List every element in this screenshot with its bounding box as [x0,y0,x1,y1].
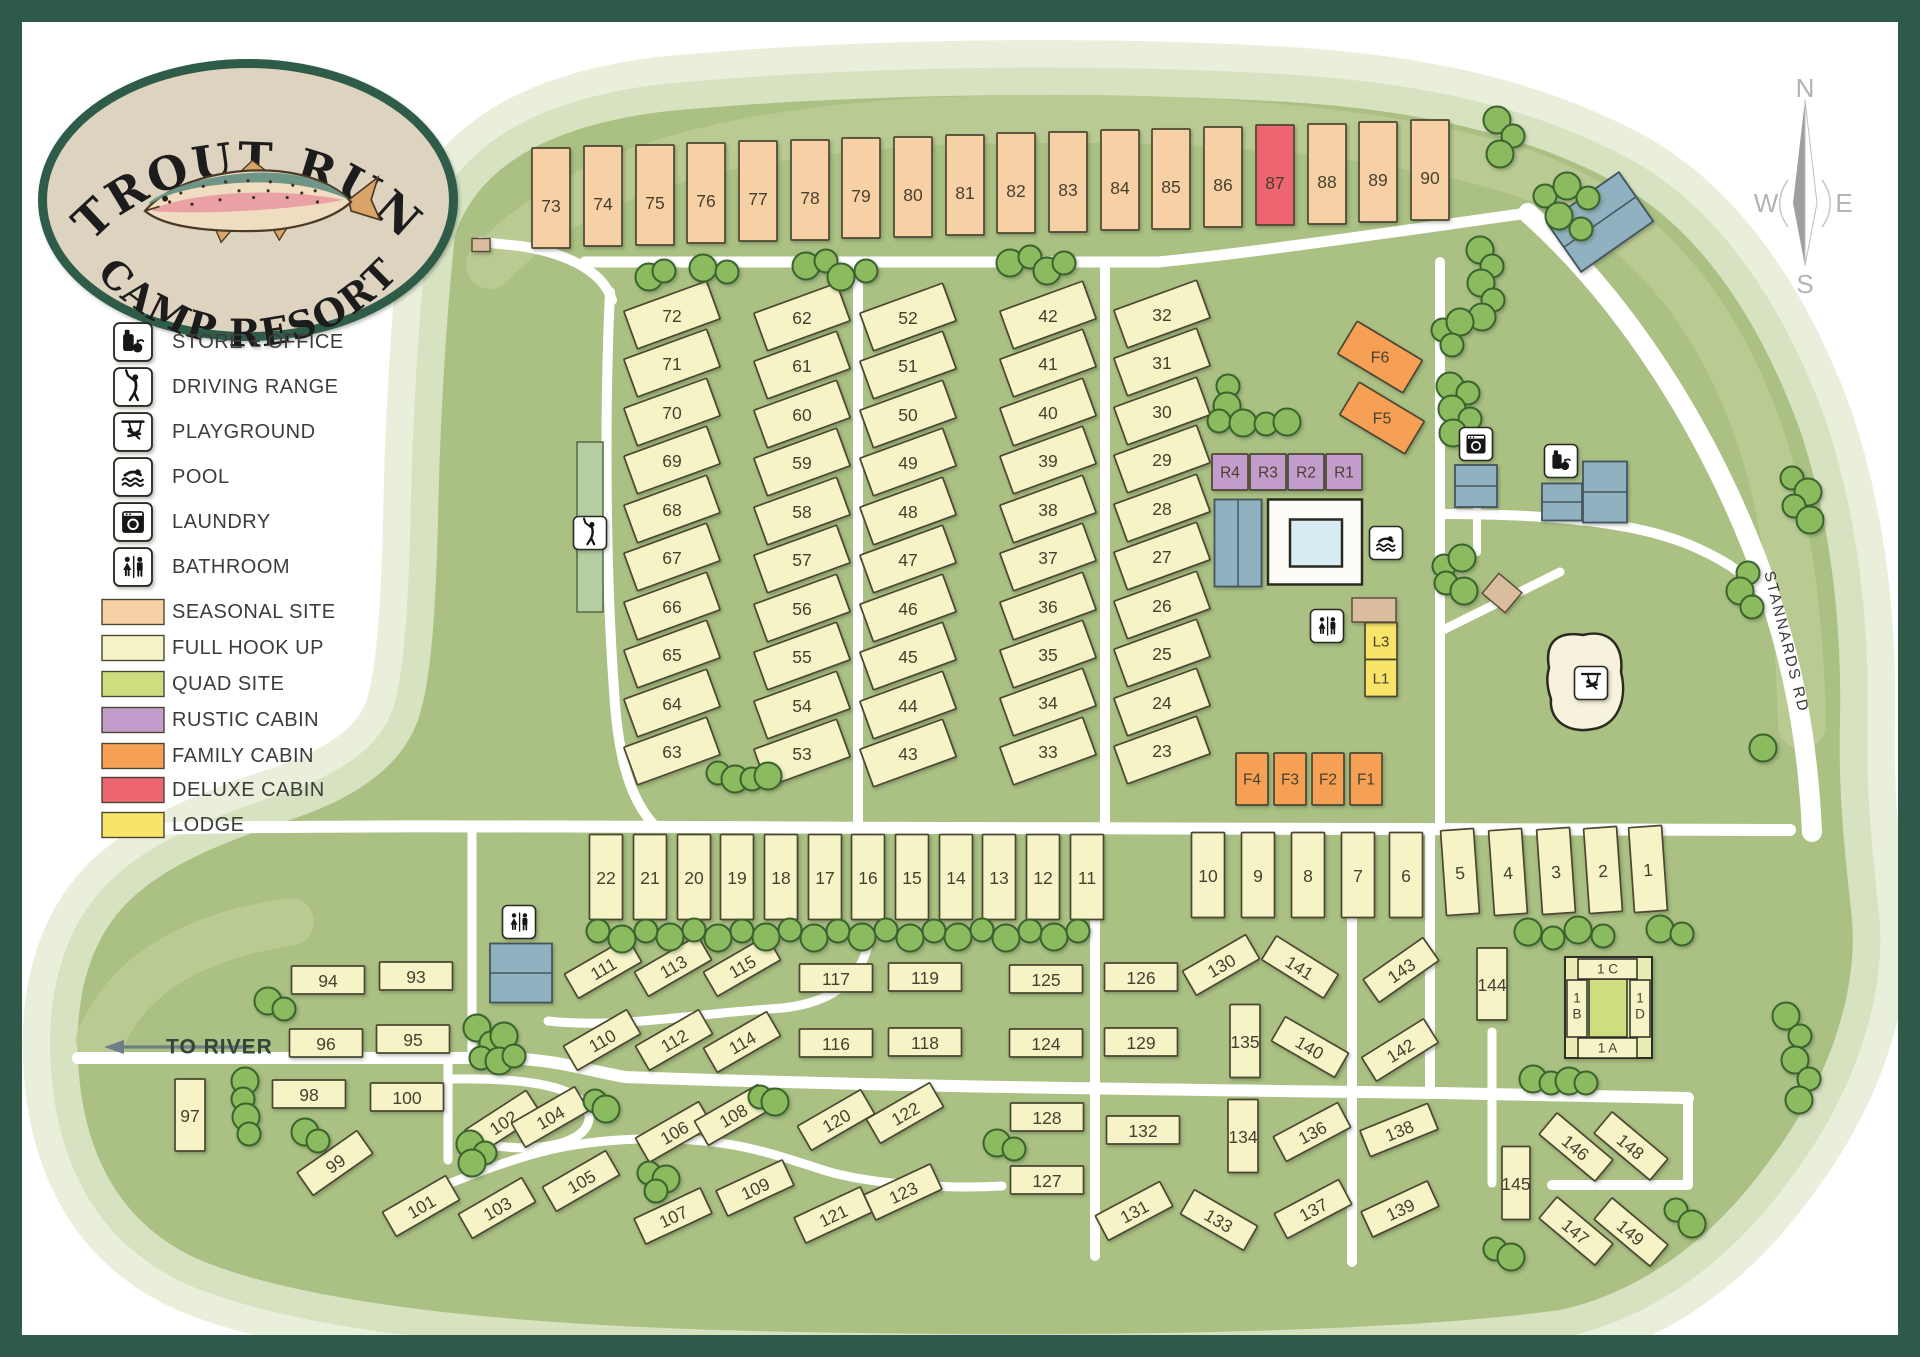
golf-icon [574,517,607,550]
building [1455,465,1497,507]
site-number: R3 [1258,465,1278,482]
legend-swing-icon [114,413,152,451]
legend-item-label: BATHROOM [172,556,290,578]
site-R1: R1 [1326,454,1362,490]
legend-item-label: STORE + OFFICE [172,331,344,353]
tree [1447,309,1474,336]
trout-spot [202,185,205,188]
tree [1041,924,1068,951]
site-R3: R3 [1250,454,1286,490]
site-number: 67 [662,548,681,568]
tree [731,920,754,943]
legend-swatch-family: FAMILY CABIN [102,744,314,769]
site-number: 78 [800,188,819,208]
site-number: 94 [318,971,338,991]
swim-icon [1370,527,1403,560]
site-number: 4 [1503,863,1514,884]
site-116: 116 [800,1029,873,1057]
site-number: 77 [748,189,767,209]
tree [849,924,876,951]
tree [1546,203,1573,230]
lodge-unit-label: 1 C [1597,962,1618,977]
site-F1: F1 [1350,753,1382,805]
golf-glyph-stroke [134,381,136,393]
site-number: F5 [1373,411,1392,428]
site-number: 118 [911,1033,939,1053]
site-number: 126 [1126,968,1155,988]
site-number: 26 [1152,596,1171,616]
wc-icon [503,906,536,939]
tree [1797,507,1824,534]
site-number: 11 [1078,868,1096,888]
store-jug [1552,454,1561,469]
site-number: 6 [1401,866,1411,886]
site-16: 16 [852,835,885,920]
site-number: 117 [822,969,850,989]
compass-e: E [1835,188,1852,218]
site-number: 15 [902,868,921,888]
legend-swatch-quad: QUAD SITE [102,672,284,697]
tree [993,925,1020,952]
site-number: L3 [1373,634,1390,651]
site-number: 41 [1038,354,1057,374]
wc-glyph-dot [1331,617,1335,621]
site-number: 65 [662,645,681,665]
tree [1441,334,1464,357]
site-number: 96 [316,1034,335,1054]
tree [1515,919,1542,946]
wc-body [137,562,143,570]
tree [657,924,684,951]
site-number: 61 [792,356,811,376]
site-20: 20 [678,835,711,920]
site-88: 88 [1308,124,1346,224]
site-85: 85 [1152,129,1190,229]
site-number: 89 [1368,170,1387,190]
tree [1487,141,1514,168]
legend-swatch-color [102,672,164,697]
site-number: 72 [662,306,681,326]
site-number: 54 [792,696,812,716]
site-number: 38 [1038,500,1057,520]
site-number: 145 [1501,1174,1530,1194]
tree [779,919,802,942]
building [1542,484,1582,521]
site-6: 6 [1390,833,1423,918]
icon-box [574,517,607,550]
trout-eye [162,196,168,202]
site-134: 134 [1228,1100,1258,1173]
site-14: 14 [940,835,973,920]
tree [1230,410,1257,437]
site-number: 73 [541,196,560,216]
site-number: 2 [1598,861,1609,882]
wc-glyph-dot [137,557,142,562]
site-number: F3 [1281,772,1299,789]
compass-w: W [1754,188,1779,218]
site-124: 124 [1010,1029,1083,1057]
site-number: 17 [815,868,834,888]
tree [1570,218,1593,241]
legend-swatch-full: FULL HOOK UP [102,636,324,661]
site-number: 97 [180,1106,199,1126]
tree [1679,1211,1706,1238]
legend-swatch-rustic: RUSTIC CABIN [102,708,319,733]
legend-item-label: POOL [172,466,230,488]
building [1583,462,1627,523]
tree [1577,187,1600,210]
building [490,944,552,1003]
site-84: 84 [1101,130,1139,230]
site-number: 85 [1161,177,1180,197]
trout-spot [246,179,249,182]
golf-glyph-stroke [591,528,592,539]
site-number: 88 [1317,172,1336,192]
site-number: 132 [1128,1121,1157,1141]
laundry-glyph-dot [129,513,131,515]
tree [897,925,924,952]
legend-swatch-color [102,813,164,838]
site-number: 30 [1152,402,1172,422]
tree [1208,410,1231,433]
lodge-unit-label: 1D [1635,991,1645,1022]
laundry-glyph-dot [1473,437,1475,439]
legend-item-label: LAUNDRY [172,511,271,533]
site-number: 53 [792,744,811,764]
site-number: 10 [1198,866,1218,886]
site-number: 59 [792,453,811,473]
tree [645,1180,668,1203]
tree [635,920,658,943]
site-F4: F4 [1236,753,1268,805]
tree [875,919,898,942]
wc-glyph-dot [523,913,527,917]
legend-swatch-color [102,744,164,769]
site-number: 70 [662,403,682,423]
swing-icon [1575,667,1608,700]
site-number: 55 [792,647,811,667]
site-79: 79 [842,138,880,238]
site-83: 83 [1049,132,1087,232]
site-number: 93 [406,967,425,987]
tree [855,260,878,283]
site-number: 36 [1038,597,1057,617]
tree [828,264,855,291]
wc-glyph-dot [125,557,130,562]
tree [1786,1087,1813,1114]
legend-store-icon [114,323,152,361]
tree [238,1123,261,1146]
site-number: 1 [1643,860,1654,881]
tree [1542,927,1565,950]
tree [755,763,782,790]
site-number: 25 [1152,644,1171,664]
icon-box [114,458,152,496]
site-number: 62 [792,308,811,328]
site-number: 71 [662,354,681,374]
site-number: 68 [662,500,681,520]
site-11: 11 [1071,835,1104,920]
site-117: 117 [800,964,873,992]
site-number: 37 [1038,548,1057,568]
site-118: 118 [889,1028,962,1056]
site-number: 135 [1230,1032,1259,1052]
site-17: 17 [809,835,842,920]
site-93: 93 [380,962,453,990]
site-number: 58 [792,502,811,522]
legend-swatch-color [102,708,164,733]
site-73: 73 [532,148,570,248]
site-76: 76 [687,143,725,243]
site-18: 18 [765,835,798,920]
site-86: 86 [1204,127,1242,227]
site-5: 5 [1441,828,1480,915]
legend-laundry-icon [114,503,152,541]
tree [307,1130,330,1153]
trout-spot [237,189,240,192]
site-number: 98 [299,1085,318,1105]
trout-spot [252,196,255,199]
tree [923,920,946,943]
site-number: 43 [898,744,917,764]
site-129: 129 [1105,1028,1178,1056]
site-74: 74 [584,146,622,246]
trout-spot [316,200,319,203]
tree [503,1045,526,1068]
to-river-text: TO RIVER [166,1036,273,1059]
site-number: 80 [903,185,923,205]
site-97: 97 [175,1079,205,1151]
laundry-glyph-dot [129,521,137,529]
site-number: 12 [1033,868,1052,888]
site-number: 8 [1303,866,1313,886]
site-number: 87 [1265,173,1284,193]
wc-body [1330,622,1335,629]
site-95: 95 [377,1025,450,1053]
site-number: 76 [696,191,715,211]
site-number: 20 [684,868,704,888]
tree [273,998,296,1021]
legend-swatch-label: QUAD SITE [172,673,284,695]
tree [716,261,739,284]
site-number: F6 [1371,350,1390,367]
site-3: 3 [1537,827,1576,914]
trout-spot [190,203,193,206]
trout-spot [179,191,182,194]
site-number: 44 [898,696,918,716]
site-R2: R2 [1288,454,1324,490]
tree [1019,920,1042,943]
site-number: 21 [640,868,659,888]
site-number: 35 [1038,645,1057,665]
legend-swatch-color [102,636,164,661]
site-number: 90 [1420,168,1440,188]
site-number: 27 [1152,547,1171,567]
site-L3: L3 [1365,623,1397,660]
lodge-unit-1C: 1 C [1578,959,1637,979]
site-128: 128 [1011,1103,1084,1131]
site-number: 84 [1110,178,1130,198]
tree [593,1096,620,1123]
tree [753,924,780,951]
tree [609,926,636,953]
tree [683,919,706,942]
site-80: 80 [894,137,932,237]
site-number: 51 [898,356,917,376]
legend-swatch-label: RUSTIC CABIN [172,709,319,731]
lodge-unit-1D: 1D [1630,980,1650,1037]
site-number: 45 [898,647,917,667]
site-number: 48 [898,502,917,522]
site-L1: L1 [1365,660,1397,697]
icon-box [114,368,152,406]
tree [1003,1138,1026,1161]
site-number: R2 [1296,465,1316,482]
site-1: 1 [1629,825,1668,912]
site-number: R4 [1220,465,1240,482]
site-number: F2 [1319,772,1337,789]
site-77: 77 [739,141,777,241]
legend-swatch-label: FAMILY CABIN [172,745,314,767]
store-icon [1545,445,1578,478]
site-number: 66 [662,597,681,617]
site-number: 60 [792,405,812,425]
trout-spot [267,189,270,192]
store-jug [123,334,134,351]
tree [801,925,828,952]
tree [705,925,732,952]
trout-spot [269,180,272,183]
site-15: 15 [896,835,929,920]
site-number: L1 [1373,671,1390,688]
site-89: 89 [1359,122,1397,222]
tree [1647,916,1674,943]
site-13: 13 [983,835,1016,920]
site-number: 31 [1152,353,1171,373]
lodge-center [1589,979,1627,1037]
site-number: 129 [1126,1033,1155,1053]
tree [1789,1025,1812,1048]
tree [827,920,850,943]
trout-spot [168,200,171,203]
site-number: 28 [1152,499,1171,519]
legend-swatch-lodge: LODGE [102,813,245,838]
trout-spot [286,196,289,199]
lodge-complex: 1 C1 A1B1D [1565,957,1652,1058]
site-number: 5 [1455,863,1466,884]
tree [1451,578,1478,605]
tree [587,920,610,943]
site-22: 22 [590,835,623,920]
site-132: 132 [1107,1116,1180,1144]
legend-swatch-seasonal: SEASONAL SITE [102,600,336,625]
tree [1750,735,1777,762]
legend-swatch-deluxe: DELUXE CABIN [102,778,325,803]
trout-spot [314,189,317,192]
site-100: 100 [371,1083,444,1111]
site-number: 29 [1152,450,1171,470]
site-10: 10 [1192,833,1225,918]
store-glyph-dot [1561,462,1569,470]
site-78: 78 [791,140,829,240]
site-82: 82 [997,133,1035,233]
lodge-unit-1A: 1 A [1578,1038,1637,1058]
campground-map: 7374757677787980818283848586878889907271… [0,0,1920,1357]
laundry-glyph-dot [1473,443,1480,450]
site-number: R1 [1334,465,1354,482]
tree [1565,917,1592,944]
laundry-glyph-dot [126,513,128,515]
site-number: 9 [1253,866,1263,886]
site-87: 87 [1256,125,1294,225]
road [92,826,1790,830]
store-jug-neck [125,330,130,335]
site-number: F4 [1243,772,1261,789]
compass-n: N [1796,73,1815,103]
shed-shape [472,239,490,252]
tree [762,1089,789,1116]
site-R4: R4 [1212,454,1248,490]
site-number: 50 [898,405,918,425]
site-number: 19 [727,868,746,888]
tree [1575,1072,1598,1095]
tree [459,1150,486,1177]
site-number: 116 [822,1034,850,1054]
tree [1741,596,1764,619]
site-number: 7 [1353,866,1363,886]
site-75: 75 [636,145,674,245]
shed [1352,598,1396,622]
site-number: 40 [1038,403,1058,423]
site-number: 95 [403,1030,422,1050]
site-12: 12 [1027,835,1060,920]
map-canvas: 7374757677787980818283848586878889907271… [0,0,1920,1357]
building [1215,500,1262,587]
site-number: F1 [1357,772,1375,789]
tree [690,255,717,282]
shed-shape [1352,598,1396,622]
site-number: 75 [645,193,664,213]
tree [1671,923,1694,946]
site-2: 2 [1584,826,1623,913]
site-number: 22 [596,868,615,888]
site-number: 144 [1477,975,1506,995]
site-number: 74 [593,194,613,214]
lodge-unit-label: 1B [1572,991,1581,1022]
site-number: 52 [898,308,917,328]
legend-swatch-label: LODGE [172,814,245,836]
site-number: 134 [1228,1127,1257,1147]
icon-box [1370,527,1403,560]
site-number: 127 [1032,1171,1061,1191]
site-number: 83 [1058,180,1077,200]
site-number: 42 [1038,306,1057,326]
store-jug-neck [1554,450,1558,455]
legend-item-label: DRIVING RANGE [172,376,339,398]
legend-wc-icon [114,548,152,586]
site-number: 63 [662,742,681,762]
trout-spot [218,198,221,201]
site-number: 119 [911,968,939,988]
lodge-unit-label: 1 A [1598,1041,1618,1056]
tree [1498,1244,1525,1271]
laundry-icon [1460,428,1493,461]
site-number: 24 [1152,693,1172,713]
site-number: 39 [1038,451,1057,471]
site-96: 96 [290,1029,363,1057]
wc-glyph-dot [1320,617,1324,621]
legend-swatch-label: FULL HOOK UP [172,637,324,659]
